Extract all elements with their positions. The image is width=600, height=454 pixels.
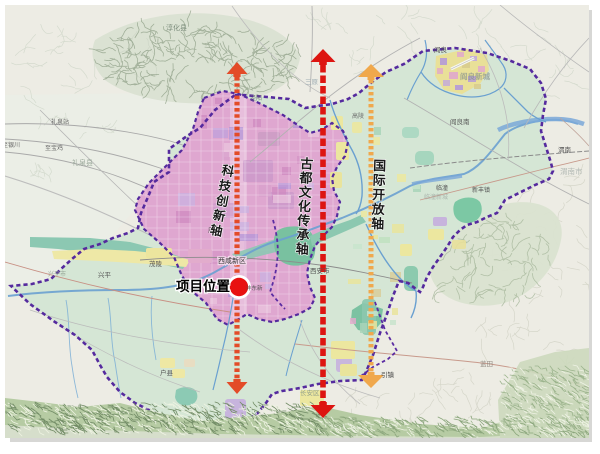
svg-text:茂陵: 茂陵 — [149, 259, 163, 268]
svg-text:渭南市: 渭南市 — [560, 166, 583, 176]
svg-text:西安市: 西安市 — [310, 266, 330, 275]
svg-text:户县: 户县 — [160, 368, 174, 377]
svg-text:阎良: 阎良 — [434, 45, 448, 54]
svg-text:新丰镇: 新丰镇 — [472, 186, 490, 194]
svg-text:泾阳: 泾阳 — [250, 94, 262, 102]
svg-text:沣东新: 沣东新 — [246, 284, 263, 292]
svg-text:三原: 三原 — [305, 78, 319, 86]
svg-text:西咸新区: 西咸新区 — [218, 256, 246, 265]
svg-text:蓝田: 蓝田 — [480, 359, 493, 368]
svg-text:高陵: 高陵 — [352, 112, 364, 120]
svg-text:长安区: 长安区 — [300, 388, 320, 397]
svg-text:礼泉站: 礼泉站 — [51, 118, 69, 126]
svg-text:引镇: 引镇 — [381, 370, 395, 379]
svg-text:淳化县: 淳化县 — [166, 23, 187, 32]
svg-text:临潼: 临潼 — [436, 184, 448, 192]
svg-text:礼泉县: 礼泉县 — [72, 158, 93, 167]
svg-text:项目位置: 项目位置 — [176, 278, 230, 294]
svg-text:兴平市: 兴平市 — [48, 270, 66, 278]
svg-text:阎良新城: 阎良新城 — [460, 71, 490, 81]
svg-text:兴平: 兴平 — [98, 270, 112, 279]
svg-text:阎良南: 阎良南 — [450, 117, 470, 126]
svg-text:临潼新城: 临潼新城 — [424, 193, 448, 201]
svg-text:渭南: 渭南 — [558, 145, 572, 154]
svg-text:至宝鸡: 至宝鸡 — [45, 144, 63, 152]
